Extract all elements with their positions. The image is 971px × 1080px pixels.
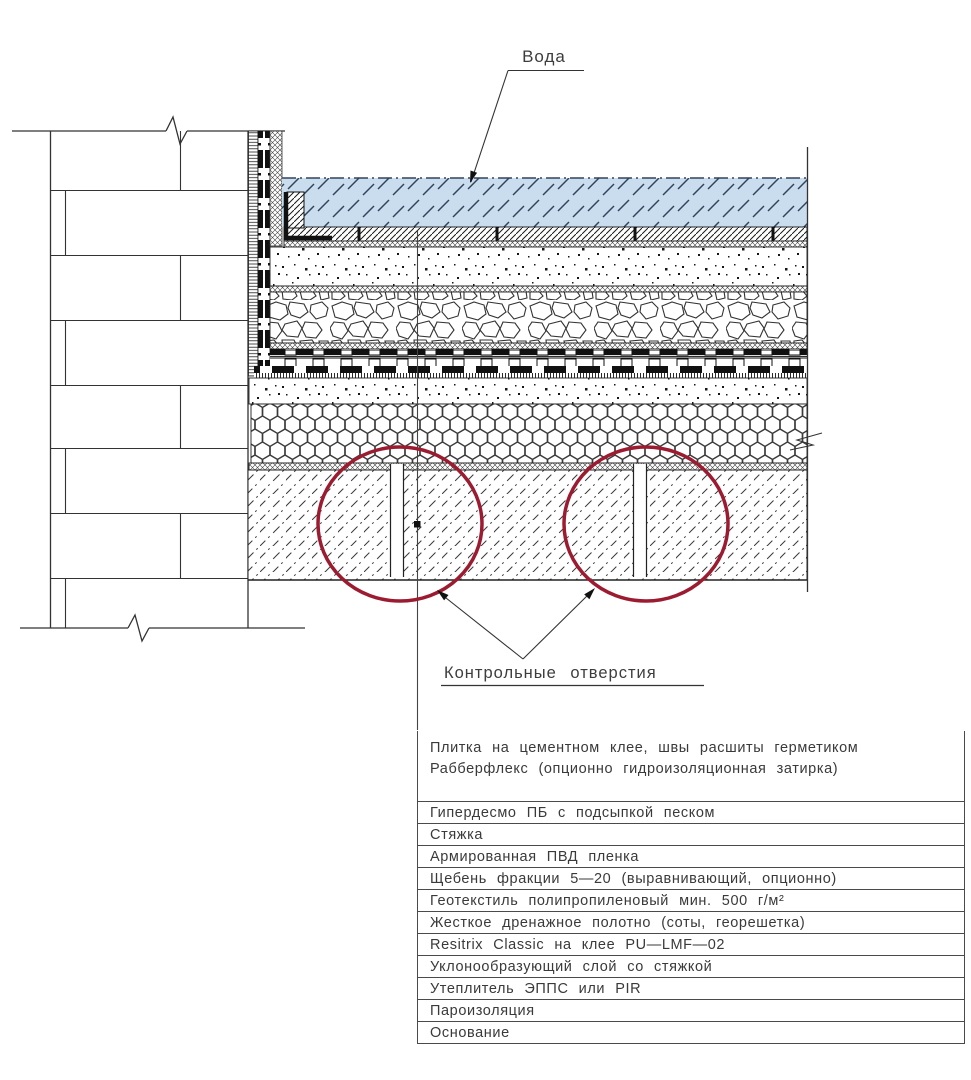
water-leader-line	[471, 71, 508, 183]
layer-table: Плитка на цементном клее, швы расшиты ге…	[417, 731, 965, 1044]
layer-table-row: Основание	[418, 1022, 964, 1044]
pvd-film-layer	[270, 286, 807, 292]
water-layer	[282, 178, 807, 227]
layer-table-row: Щебень фракции 5—20 (выравнивающий, опци…	[418, 868, 964, 890]
membrane-upstand-strip	[258, 131, 270, 371]
hyperdesmo-layer	[284, 241, 807, 247]
geotextile-layer	[270, 343, 807, 349]
leader-marker-dot	[414, 521, 421, 528]
brick-courses	[50, 131, 248, 628]
crosshatch-strip	[270, 131, 282, 246]
base-layer	[248, 470, 807, 580]
layer-table-row: Гипердесмо ПБ с подсыпкой песком	[418, 802, 964, 824]
drainage-sheet-layer	[270, 349, 807, 366]
vapor-barrier-layer	[249, 463, 807, 470]
roof-layers	[248, 178, 807, 580]
wall-top-break-icon	[166, 117, 187, 144]
construction-detail-page: Вода Контрольные отверстия Плитка на цем…	[0, 0, 971, 1080]
control-hole-left	[391, 464, 404, 577]
layer-table-row: Утеплитель ЭППС или PIR	[418, 978, 964, 1000]
resitrix-layer	[254, 366, 807, 373]
layer-table-row: Пароизоляция	[418, 1000, 964, 1022]
layer-table-row: Жесткое дренажное полотно (соты, геореше…	[418, 912, 964, 934]
resitrix-underside	[254, 373, 807, 378]
plaster-strip	[249, 131, 259, 376]
water-callout: Вода	[470, 47, 584, 183]
control-holes-leader-lines	[441, 592, 591, 659]
control-holes-callout: Контрольные отверстия	[437, 588, 704, 686]
layer-table-row: Геотекстиль полипропиленовый мин. 500 г/…	[418, 890, 964, 912]
construction-detail-drawing: Вода Контрольные отверстия	[0, 0, 971, 730]
layer-table-row: Resitrix Classic на клее PU—LMF—02	[418, 934, 964, 956]
slope-screed-layer	[249, 378, 807, 404]
layer-table-row: Уклонообразующий слой со стяжкой	[418, 956, 964, 978]
water-label: Вода	[522, 47, 566, 66]
gravel-layer	[270, 292, 807, 343]
layer-table-row: Армированная ПВД пленка	[418, 846, 964, 868]
tile-upstand	[287, 192, 304, 228]
control-holes-label: Контрольные отверстия	[444, 664, 657, 682]
control-hole-right	[634, 464, 647, 577]
insulation-layer	[251, 404, 807, 463]
layer-table-row: Стяжка	[418, 824, 964, 846]
screed-layer	[270, 247, 807, 286]
layer-table-row: Плитка на цементном клее, швы расшиты ге…	[418, 731, 964, 802]
tile-layer	[284, 227, 807, 241]
wall-bottom-break-icon	[128, 615, 149, 641]
